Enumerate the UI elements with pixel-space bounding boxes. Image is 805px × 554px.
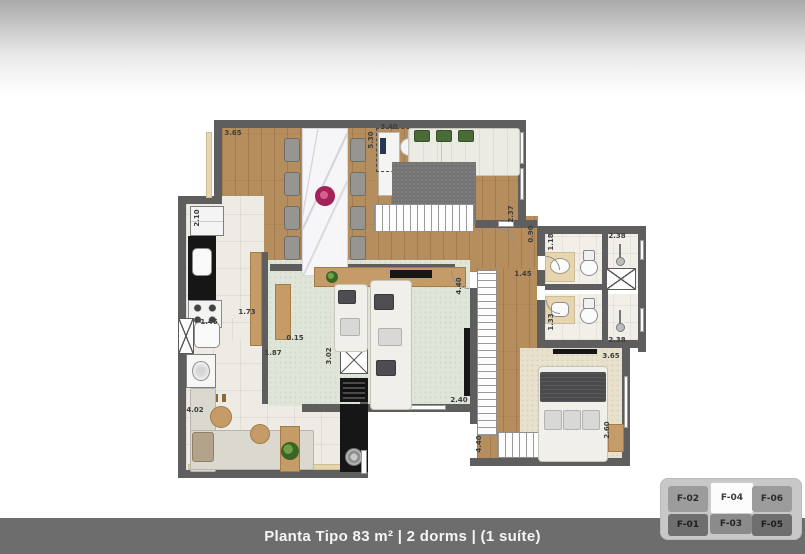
dimension-label: 0.15 — [284, 334, 306, 342]
dimension-label: 0.90 — [527, 223, 535, 245]
dimension-label: 1.33 — [547, 311, 555, 333]
wall-left-upper — [214, 120, 222, 204]
keyplan-unit-f-05: F-05 — [752, 514, 792, 536]
kitchen-cabinet — [250, 252, 262, 346]
dimension-label: 3.02 — [325, 345, 333, 367]
bedroom2-plant — [326, 271, 338, 283]
footer-title: Planta Tipo 83 m² | 2 dorms | (1 suíte) — [264, 528, 541, 545]
wall-bath-left-b — [537, 270, 545, 286]
closet-wardrobe — [477, 270, 497, 436]
dining-chair — [350, 236, 366, 260]
window-suite — [624, 376, 628, 428]
wall-top — [218, 120, 526, 128]
window-bath-1 — [640, 240, 644, 260]
bedroom2-tv — [390, 270, 432, 278]
keyplan-unit-f-04: F-04 — [710, 482, 754, 514]
grill-door — [361, 450, 367, 474]
window-living-1 — [520, 132, 524, 164]
dining-chair — [350, 206, 366, 230]
dimension-label: 3.40 — [378, 123, 400, 131]
keyplan-unit-f-02: F-02 — [668, 486, 708, 512]
dimension-label: 3.65 — [222, 129, 244, 137]
page-background: 3.652.101.731.464.021.873.020.155.303.40… — [0, 0, 805, 554]
dimension-label: 2.10 — [193, 207, 201, 229]
floorplan: 3.652.101.731.464.021.873.020.155.303.40… — [168, 112, 656, 484]
washing-machine — [186, 354, 216, 388]
dimension-label: 4.40 — [475, 433, 483, 455]
wall-bath-divider — [545, 284, 602, 290]
dimension-label: 2.40 — [448, 396, 470, 404]
keyplan-unit-f-03: F-03 — [710, 514, 752, 534]
grill-vent — [340, 378, 368, 402]
bookshelf — [374, 204, 474, 232]
bedroom2-desk — [275, 284, 291, 340]
dimension-label: 1.45 — [512, 270, 534, 278]
kitchen-sink — [192, 248, 212, 276]
bath2-shower-head — [614, 310, 626, 332]
dining-chair — [350, 138, 366, 162]
keyplan-unit-f-06: F-06 — [752, 486, 792, 512]
bedroom2-pillow-2 — [374, 294, 394, 310]
dining-chair — [284, 172, 300, 196]
dimension-label: 1.18 — [547, 231, 555, 253]
dining-chair — [284, 206, 300, 230]
dimension-label: 4.02 — [184, 406, 206, 414]
dining-chair — [350, 172, 366, 196]
dimension-label: 4.40 — [455, 275, 463, 297]
suite-wardrobe — [497, 432, 541, 458]
balcony-table-round — [210, 406, 232, 428]
dimension-label: 1.73 — [236, 308, 258, 316]
dimension-label: 2.60 — [603, 419, 611, 441]
dimension-label: 2.37 — [507, 203, 515, 225]
dimension-label: 3.65 — [600, 352, 622, 360]
sofa-cushion-green-3 — [458, 130, 474, 142]
balcony-armchair — [192, 432, 214, 462]
dimension-label: 1.46 — [198, 318, 220, 326]
bath1-shower-head — [614, 244, 626, 266]
dimension-label: 5.30 — [367, 129, 375, 151]
dining-chair — [284, 236, 300, 260]
window-dining-sill — [206, 132, 212, 198]
wall-kitchen-divider — [262, 252, 268, 404]
balcony-table-round-2 — [250, 424, 270, 444]
sofa-cushion-green-2 — [436, 130, 452, 142]
keyplan-unit-f-01: F-01 — [668, 514, 708, 536]
window-bath-2 — [640, 308, 644, 332]
bath1-toilet — [580, 250, 598, 276]
suite-pillow-3 — [582, 410, 600, 430]
window-living-2 — [520, 168, 524, 200]
balcony-plant — [281, 442, 299, 460]
keyplan: F-02F-04F-06F-01F-03F-05 — [660, 478, 802, 540]
suite-blanket — [540, 372, 606, 402]
bedroom2-pillow-3 — [376, 360, 396, 376]
bedroom2-cushion-2 — [378, 328, 402, 346]
laundry-shaft — [178, 318, 194, 354]
dimension-label: 1.87 — [262, 349, 284, 357]
dimension-label: 2.38 — [606, 232, 628, 240]
bedroom2-tv-panel — [464, 328, 470, 396]
suite-tv — [553, 349, 597, 354]
wall-bath-left-a — [537, 226, 545, 256]
bedroom2-cushion — [340, 318, 360, 336]
bedroom2-pillow — [338, 290, 356, 304]
sofa-cushion-green — [414, 130, 430, 142]
flower-centerpiece — [315, 186, 335, 206]
bath-shaft — [606, 268, 636, 290]
dining-chair — [284, 138, 300, 162]
dimension-label: 2.38 — [606, 336, 628, 344]
wall-bath-left-c — [537, 300, 545, 340]
suite-pillow — [544, 410, 562, 430]
bath2-toilet — [580, 298, 598, 324]
suite-pillow-2 — [563, 410, 581, 430]
